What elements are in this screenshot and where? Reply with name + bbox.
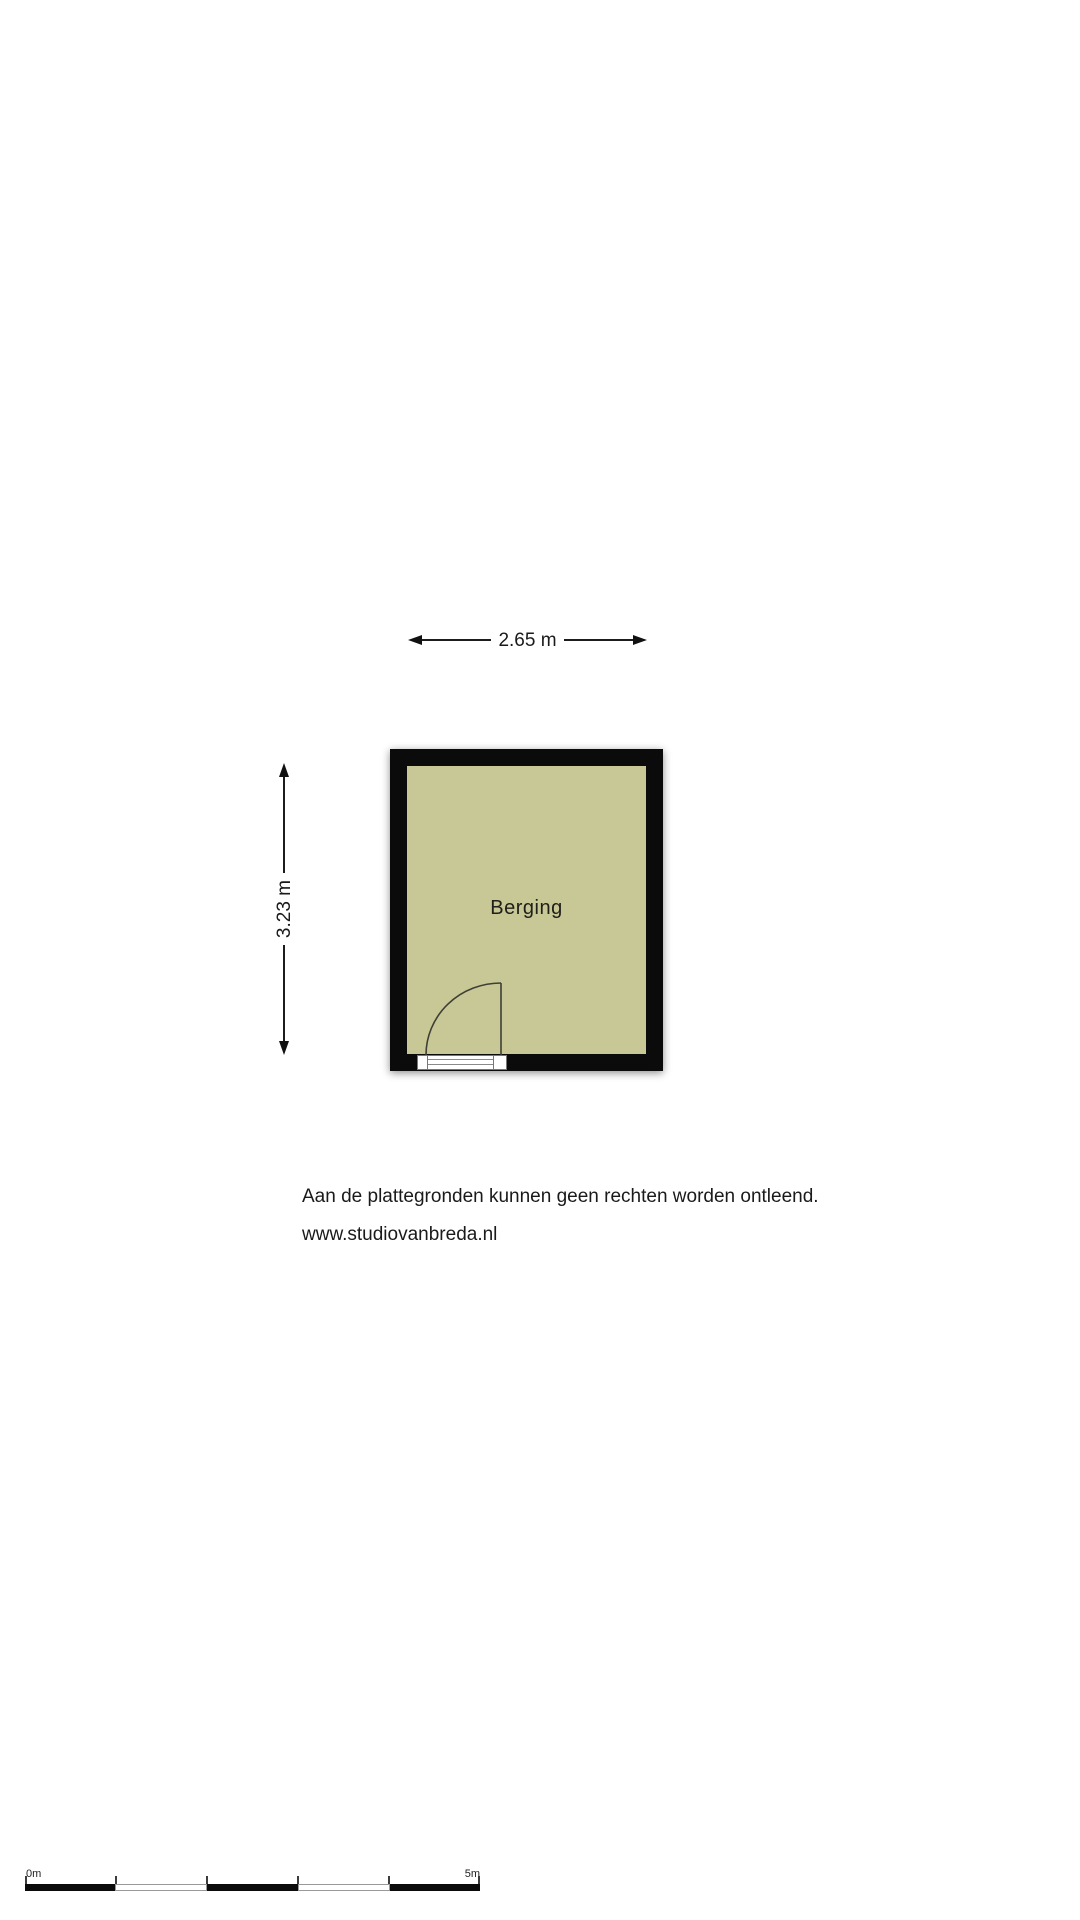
- arrow-left-icon: [408, 635, 422, 645]
- scale-segment: [207, 1884, 297, 1891]
- scale-end-label: 5m: [440, 1869, 480, 1880]
- width-dimension: 2.65 m: [408, 631, 647, 649]
- scale-tick: [297, 1876, 299, 1884]
- scale-tick: [206, 1876, 208, 1884]
- width-dimension-label: 2.65 m: [498, 631, 556, 650]
- scale-segment: [25, 1884, 115, 1891]
- door-swing-icon: [415, 970, 515, 1060]
- arrow-up-icon: [279, 763, 289, 777]
- scale-tick: [478, 1876, 480, 1884]
- scale-segment: [390, 1884, 480, 1891]
- height-dimension: 3.23 m: [275, 763, 293, 1055]
- scale-start-label: 0m: [26, 1869, 41, 1880]
- height-dimension-label: 3.23 m: [275, 880, 294, 938]
- website-text: www.studiovanbreda.nl: [302, 1224, 497, 1246]
- scale-segment: [115, 1884, 207, 1891]
- arrow-down-icon: [279, 1041, 289, 1055]
- disclaimer-text: Aan de plattegronden kunnen geen rechten…: [302, 1186, 819, 1208]
- scale-tick: [115, 1876, 117, 1884]
- door-arc: [426, 983, 501, 1055]
- scale-bar: 0m 5m: [25, 1866, 480, 1891]
- dimension-line: [564, 639, 633, 641]
- dimension-line: [283, 777, 285, 873]
- scale-tick: [25, 1876, 27, 1884]
- dimension-line: [283, 945, 285, 1041]
- scale-track: [25, 1884, 480, 1891]
- scale-tick: [388, 1876, 390, 1884]
- arrow-right-icon: [633, 635, 647, 645]
- room-label: Berging: [490, 897, 562, 920]
- floor-plan-page: { "floor_plan": { "room": { "name": "Ber…: [0, 0, 1080, 1920]
- dimension-line: [422, 639, 491, 641]
- scale-segment: [298, 1884, 390, 1891]
